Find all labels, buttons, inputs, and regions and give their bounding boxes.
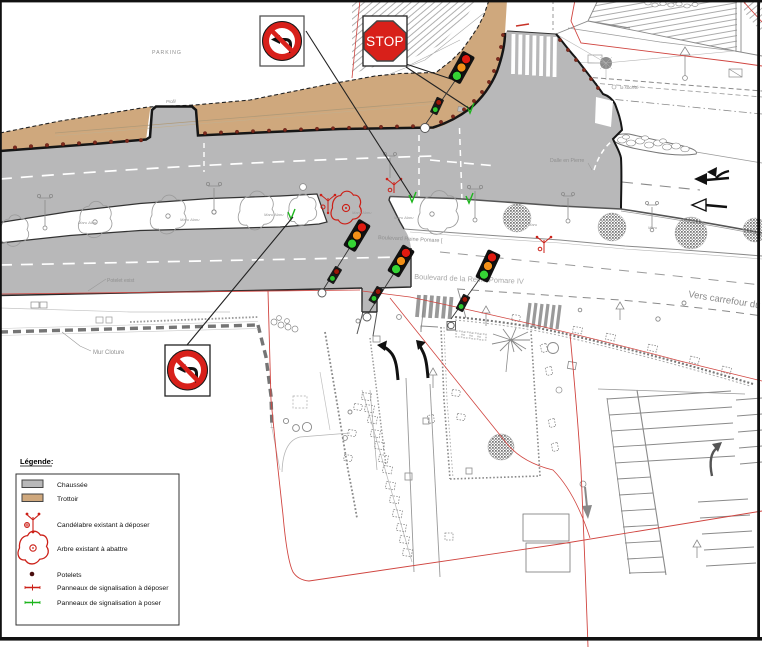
svg-text:Maru Alaru: Maru Alaru [78,220,98,225]
svg-text:PARKING: PARKING [152,50,182,56]
svg-text:Maru Alaru: Maru Alaru [394,215,414,220]
svg-text:Mur Cloture: Mur Cloture [93,350,125,356]
svg-text:Légende:: Légende: [20,457,53,466]
svg-text:Potelets: Potelets [57,572,82,579]
svg-text:Arbre existant à abattre: Arbre existant à abattre [57,546,128,553]
svg-text:Maru Alaru: Maru Alaru [180,217,200,222]
svg-text:Maru: Maru [648,225,658,230]
svg-text:Chaussée: Chaussée [57,482,88,489]
svg-text:Potelet exist: Potelet exist [107,278,135,284]
svg-text:Trottoir: Trottoir [57,496,79,503]
svg-text:Candélabre existant à déposer: Candélabre existant à déposer [57,522,150,529]
svg-text:Maru Alaru: Maru Alaru [264,212,284,217]
svg-text:Panneaux de signalisation à po: Panneaux de signalisation à poser [57,600,162,607]
svg-text:STOP: STOP [366,34,404,49]
svg-text:Maru: Maru [528,222,538,227]
svg-text:Panneaux de signalisation à dé: Panneaux de signalisation à déposer [57,585,169,592]
svg-text:Dalle en Pierre: Dalle en Pierre [550,158,584,164]
svg-text:Profil: Profil [166,99,177,104]
svg-text:Maru Alaru: Maru Alaru [352,210,372,215]
svg-text:la société: la société [620,85,639,90]
